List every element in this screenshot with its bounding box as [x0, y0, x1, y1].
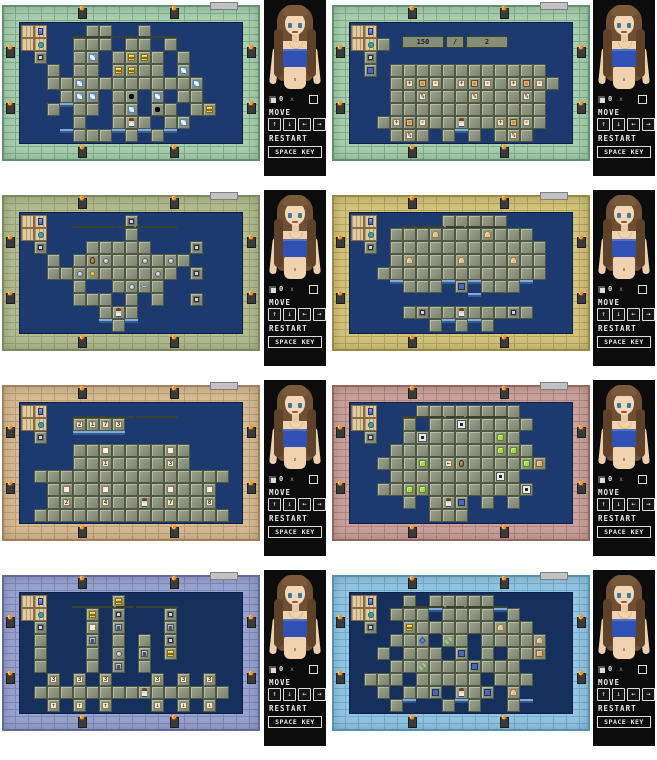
gold-crate — [167, 650, 174, 657]
water-edge — [403, 699, 416, 712]
floor-tile — [377, 686, 390, 699]
black-crate — [367, 434, 374, 441]
arrow-right-key[interactable]: → — [313, 308, 326, 321]
tatami-tile — [21, 38, 34, 51]
monitor-crate — [419, 434, 426, 441]
floor-tile — [125, 103, 138, 116]
floor-tile — [99, 77, 112, 90]
character-portrait — [268, 383, 322, 471]
floor-tile — [390, 634, 403, 647]
portrait-neck — [292, 224, 299, 232]
torch-icon — [6, 47, 15, 58]
floor-tile — [442, 90, 455, 103]
floor-tile — [507, 103, 520, 116]
arrow-left-key[interactable]: ← — [627, 498, 640, 511]
floor-tile — [481, 64, 494, 77]
arrow-down-key[interactable]: ↓ — [283, 118, 296, 131]
floor-tile — [177, 116, 190, 129]
water-pool — [38, 422, 44, 428]
player-character — [142, 498, 147, 507]
floor-tile — [416, 306, 429, 319]
floor-tile — [112, 660, 125, 673]
floor-tile — [429, 444, 442, 457]
arrow-right-key[interactable]: → — [313, 688, 326, 701]
plus-tile: + — [406, 80, 413, 87]
black-crate — [37, 434, 44, 441]
portrait-mouth — [292, 601, 298, 603]
portrait-bangs — [282, 575, 308, 586]
tatami-tile — [351, 215, 364, 228]
floor-tile — [403, 228, 416, 241]
floor-tile — [494, 228, 507, 241]
space-key-button[interactable]: SPACE KEY — [268, 146, 322, 158]
arrow-right-key[interactable]: → — [313, 498, 326, 511]
item-counter: 0 x — [593, 473, 655, 485]
space-key-button[interactable]: SPACE KEY — [597, 146, 651, 158]
dungeon-wall-frame — [2, 5, 260, 161]
fountain-statue — [368, 28, 373, 35]
number-sign — [63, 486, 70, 493]
torch-icon — [78, 147, 87, 158]
floor-tile: ↓ — [203, 699, 216, 712]
floor-tile — [112, 51, 125, 64]
jelly-block — [406, 486, 413, 493]
water-edge — [455, 699, 468, 712]
floor-tile — [481, 634, 494, 647]
floor-tile — [507, 496, 520, 509]
floor-tile — [494, 634, 507, 647]
target-box-icon — [309, 95, 318, 104]
floor-tile — [507, 64, 520, 77]
restart-label: RESTART — [269, 324, 326, 333]
water-pool — [368, 232, 374, 238]
floor-tile — [86, 686, 99, 699]
arrow-up-key[interactable]: ↑ — [597, 688, 610, 701]
floor-tile — [494, 483, 507, 496]
score-hud — [402, 416, 508, 418]
floor-tile — [455, 254, 468, 267]
floor-tile — [86, 634, 99, 647]
floor-tile — [190, 77, 203, 90]
floor-tile — [429, 280, 442, 293]
arrow-left-key[interactable]: ← — [627, 118, 640, 131]
water-pool — [38, 612, 44, 618]
floor-tile — [416, 64, 429, 77]
floor-tile — [73, 457, 86, 470]
black-crate — [37, 54, 44, 61]
portrait-bangs — [611, 575, 637, 586]
arrow-down-key[interactable]: ↓ — [283, 308, 296, 321]
floor-tile — [164, 254, 177, 267]
counter-value: 0 — [279, 665, 283, 673]
floor-tile — [481, 431, 494, 444]
frame-badge — [540, 382, 568, 390]
portrait-hair — [274, 599, 283, 647]
numbered-crate: 3 — [50, 676, 57, 683]
floor-tile — [86, 38, 99, 51]
portrait-hair — [307, 29, 316, 77]
stone-orb — [116, 651, 122, 657]
floor-tile — [390, 267, 403, 280]
arrow-down-key[interactable]: ↓ — [612, 498, 625, 511]
floor-tile — [520, 267, 533, 280]
torch-icon — [577, 47, 586, 58]
black-crate — [193, 270, 200, 277]
portrait-hair — [274, 219, 283, 267]
tatami-tile — [351, 38, 364, 51]
fountain-statue — [38, 598, 43, 605]
space-key-button[interactable]: SPACE KEY — [597, 336, 651, 348]
character-portrait — [268, 193, 322, 281]
tatami-tile — [21, 418, 34, 431]
floor-tile: ↑ — [47, 699, 60, 712]
ice-block — [193, 80, 200, 87]
monitor-crate — [497, 473, 504, 480]
tatami-tile — [351, 608, 364, 621]
floor-tile — [377, 267, 390, 280]
floor-tile — [494, 457, 507, 470]
arrow-up-key[interactable]: ↑ — [597, 118, 610, 131]
game-sidebar: 0 x MOVE ↑ ↓ ← → RESTART SPACE KEY — [593, 380, 655, 556]
floor-tile — [377, 673, 390, 686]
arrow-up-tile: ↑ — [50, 702, 57, 709]
game-sidebar: 0 x MOVE ↑ ↓ ← → RESTART SPACE KEY — [264, 570, 326, 746]
portrait-neck — [292, 34, 299, 42]
arrow-right-key[interactable]: → — [642, 308, 655, 321]
floor-tile — [429, 431, 442, 444]
floor-tile — [138, 660, 151, 673]
space-key-button[interactable]: SPACE KEY — [597, 526, 651, 538]
floor-tile — [455, 660, 468, 673]
floor-tile: % — [468, 90, 481, 103]
floor-tile — [138, 647, 151, 660]
black-crate — [367, 54, 374, 61]
jelly-block — [419, 460, 426, 467]
floor-tile — [151, 509, 164, 522]
floor-tile — [520, 457, 533, 470]
floor-tile — [203, 470, 216, 483]
space-key-button[interactable]: SPACE KEY — [268, 526, 322, 538]
water-gap — [458, 650, 465, 657]
dungeon-wall-frame: 333333↑↑↑↓↓↓ — [2, 575, 260, 731]
hud-left-value — [402, 226, 444, 228]
floor-tile — [494, 280, 507, 293]
arrow-up-key[interactable]: ↑ — [268, 688, 281, 701]
floor-tile — [177, 64, 190, 77]
floor-tile — [481, 254, 494, 267]
arrow-keys: ↑ ↓ ← → — [268, 118, 326, 131]
minus-tile: - — [536, 80, 543, 87]
floor-tile — [47, 509, 60, 522]
arrow-down-key[interactable]: ↓ — [612, 308, 625, 321]
floor-tile — [429, 647, 442, 660]
target-box-icon — [638, 475, 647, 484]
minus-tile: - — [484, 80, 491, 87]
floor-tile — [390, 673, 403, 686]
floor-tile — [442, 634, 455, 647]
crate-icon — [269, 286, 276, 293]
arrow-left-key[interactable]: ← — [298, 498, 311, 511]
floor-tile — [177, 457, 190, 470]
counter-times: x — [619, 666, 623, 673]
floor-tile — [442, 418, 455, 431]
floor-tile — [138, 254, 151, 267]
dungeon-wall-frame: ← — [332, 385, 590, 541]
floor-tile — [442, 64, 455, 77]
floor-tile — [112, 90, 125, 103]
floor-tile: 7 — [99, 418, 112, 431]
arrow-left-tile: ← — [445, 460, 452, 467]
score-hud — [402, 606, 508, 608]
space-key-button[interactable]: SPACE KEY — [597, 716, 651, 728]
torch-icon — [336, 617, 345, 628]
hud-right-value — [136, 226, 178, 228]
character-portrait — [268, 3, 322, 91]
arrow-left-key[interactable]: ← — [627, 308, 640, 321]
hud-right-value — [466, 606, 508, 608]
arrow-down-key[interactable]: ↓ — [612, 688, 625, 701]
torch-icon — [336, 237, 345, 248]
water-edge — [520, 280, 533, 293]
target-box-icon — [638, 665, 647, 674]
floor-tile — [481, 660, 494, 673]
item-counter: 0 x — [264, 93, 326, 105]
torch-icon — [170, 147, 179, 158]
floor-tile — [416, 444, 429, 457]
floor-tile — [364, 64, 377, 77]
floor-tile — [73, 444, 86, 457]
portrait-mouth — [292, 411, 298, 413]
counter-times: x — [290, 476, 294, 483]
floor-tile — [520, 418, 533, 431]
number-sign — [167, 447, 174, 454]
floor-tile — [99, 444, 112, 457]
arrow-down-key[interactable]: ↓ — [612, 118, 625, 131]
floor-tile: ↓ — [151, 699, 164, 712]
floor-tile — [47, 64, 60, 77]
floor-tile — [73, 51, 86, 64]
arrow-left-key[interactable]: ← — [298, 308, 311, 321]
floor-tile — [442, 483, 455, 496]
player-character — [129, 118, 134, 127]
floor-tile — [468, 129, 481, 142]
arrow-down-tile: ↓ — [154, 702, 161, 709]
floor-tile — [455, 483, 468, 496]
floor-tile — [390, 90, 403, 103]
torch-icon — [336, 47, 345, 58]
portrait-eye — [627, 213, 631, 218]
tatami-tile — [21, 228, 34, 241]
floor-tile — [125, 38, 138, 51]
floor-tile: 8 — [203, 496, 216, 509]
floor-tile — [112, 103, 125, 116]
torch-icon — [577, 427, 586, 438]
floor-tile — [190, 267, 203, 280]
arrow-up-key[interactable]: ↑ — [597, 308, 610, 321]
torch-icon — [408, 388, 417, 399]
game-screenshot-panel: 0 x MOVE ↑ ↓ ← → RESTART SPACE KEY — [0, 190, 328, 380]
floor-tile — [403, 418, 416, 431]
minus-tile: - — [523, 119, 530, 126]
torch-icon — [408, 198, 417, 209]
floor-tile — [429, 621, 442, 634]
floor-tile — [429, 64, 442, 77]
floor-tile — [507, 621, 520, 634]
arrow-left-key[interactable]: ← — [298, 118, 311, 131]
floor-tile — [533, 241, 546, 254]
floor-tile — [73, 103, 86, 116]
floor-tile: ↓ — [177, 699, 190, 712]
floor-tile — [520, 254, 533, 267]
floor-tile: % — [520, 90, 533, 103]
game-sidebar: 0 x MOVE ↑ ↓ ← → RESTART SPACE KEY — [593, 0, 655, 176]
floor-tile — [533, 267, 546, 280]
floor-tile — [86, 444, 99, 457]
wooden-crate — [419, 80, 426, 87]
water-gap — [471, 663, 478, 670]
floor-tile — [468, 77, 481, 90]
floor-tile — [507, 699, 520, 712]
tatami-tile — [34, 418, 47, 431]
floor-tile — [468, 470, 481, 483]
game-board: 2173132478 — [19, 402, 243, 524]
ice-block — [76, 93, 83, 100]
arrow-up-key[interactable]: ↑ — [268, 308, 281, 321]
floor-tile — [494, 103, 507, 116]
hud-divider — [446, 606, 464, 608]
fountain-statue — [38, 408, 43, 415]
floor-tile — [216, 509, 229, 522]
floor-tile — [507, 241, 520, 254]
arrow-left-key[interactable]: ← — [627, 688, 640, 701]
floor-tile — [34, 660, 47, 673]
floor-tile — [364, 51, 377, 64]
restart-label: RESTART — [598, 324, 655, 333]
floor-tile — [468, 660, 481, 673]
floor-tile — [151, 457, 164, 470]
floor-tile — [455, 418, 468, 431]
space-key-button[interactable]: SPACE KEY — [268, 336, 322, 348]
numbered-crate: 2 — [76, 421, 83, 428]
counter-times: x — [619, 96, 623, 103]
gold-crate — [115, 67, 122, 74]
game-screenshot-panel: 0 x MOVE ↑ ↓ ← → RESTART SPACE KEY — [330, 570, 657, 760]
water-edge — [429, 608, 442, 621]
clay-pot — [459, 460, 464, 467]
statue — [89, 637, 96, 644]
arrow-up-key[interactable]: ↑ — [268, 498, 281, 511]
floor-tile — [455, 64, 468, 77]
arrow-down-key[interactable]: ↓ — [283, 498, 296, 511]
arrow-up-key[interactable]: ↑ — [268, 118, 281, 131]
floor-tile — [429, 457, 442, 470]
floor-tile — [60, 483, 73, 496]
torch-icon — [408, 527, 417, 538]
floor-tile — [73, 90, 86, 103]
floor-tile — [47, 267, 60, 280]
arrow-right-key[interactable]: → — [313, 118, 326, 131]
floor-tile — [494, 660, 507, 673]
arrow-up-key[interactable]: ↑ — [597, 498, 610, 511]
floor-tile — [390, 254, 403, 267]
torch-icon — [408, 578, 417, 589]
floor-tile — [216, 686, 229, 699]
floor-tile: 4 — [99, 496, 112, 509]
floor-tile — [429, 267, 442, 280]
portrait-eye — [627, 403, 631, 408]
tatami-tile — [34, 608, 47, 621]
floor-tile — [416, 470, 429, 483]
floor-tile — [177, 686, 190, 699]
wooden-crate — [510, 119, 517, 126]
black-crate — [419, 309, 426, 316]
floor-tile — [364, 673, 377, 686]
arrow-keys: ↑ ↓ ← → — [597, 118, 655, 131]
arrow-right-key[interactable]: → — [642, 498, 655, 511]
floor-tile — [416, 228, 429, 241]
torch-icon — [170, 8, 179, 19]
arrow-right-key[interactable]: → — [642, 688, 655, 701]
sand-pile — [458, 257, 465, 264]
dungeon-wall-frame: 150 / 2 +-+-+-%%%+-+-%% — [332, 5, 590, 161]
move-label: MOVE — [598, 678, 655, 687]
floor-tile — [73, 686, 86, 699]
floor-tile — [125, 457, 138, 470]
floor-tile — [377, 457, 390, 470]
floor-tile — [429, 660, 442, 673]
floor-tile — [442, 660, 455, 673]
portrait-eye — [627, 593, 631, 598]
torch-icon — [6, 293, 15, 304]
floor-tile — [442, 254, 455, 267]
floor-tile — [403, 431, 416, 444]
floor-tile — [164, 621, 177, 634]
floor-tile — [429, 319, 442, 332]
arrow-right-key[interactable]: → — [642, 118, 655, 131]
floor-tile — [481, 483, 494, 496]
arrow-left-key[interactable]: ← — [298, 688, 311, 701]
water-edge — [468, 319, 481, 332]
floor-tile — [442, 699, 455, 712]
floor-tile — [429, 673, 442, 686]
floor-tile — [533, 64, 546, 77]
ice-block — [76, 80, 83, 87]
floor-tile — [190, 103, 203, 116]
space-key-button[interactable]: SPACE KEY — [268, 716, 322, 728]
numbered-crate: 7 — [102, 421, 109, 428]
floor-tile: % — [507, 129, 520, 142]
floor-tile — [468, 228, 481, 241]
floor-tile: - — [533, 77, 546, 90]
floor-tile — [429, 306, 442, 319]
floor-tile — [416, 457, 429, 470]
floor-tile — [442, 431, 455, 444]
floor-tile — [533, 647, 546, 660]
floor-tile — [138, 444, 151, 457]
game-screenshot-panel: 0 x MOVE ↑ ↓ ← → RESTART SPACE KEY — [330, 190, 657, 380]
game-board: 333333↑↑↑↓↓↓ — [19, 592, 243, 714]
arrow-down-key[interactable]: ↓ — [283, 688, 296, 701]
floor-tile — [416, 241, 429, 254]
water-edge — [455, 129, 468, 142]
score-hud — [72, 606, 178, 608]
portrait-neck — [621, 224, 628, 232]
floor-tile — [377, 116, 390, 129]
hud-divider — [116, 226, 134, 228]
floor-tile — [494, 470, 507, 483]
jelly-block — [510, 447, 517, 454]
floor-tile — [455, 496, 468, 509]
